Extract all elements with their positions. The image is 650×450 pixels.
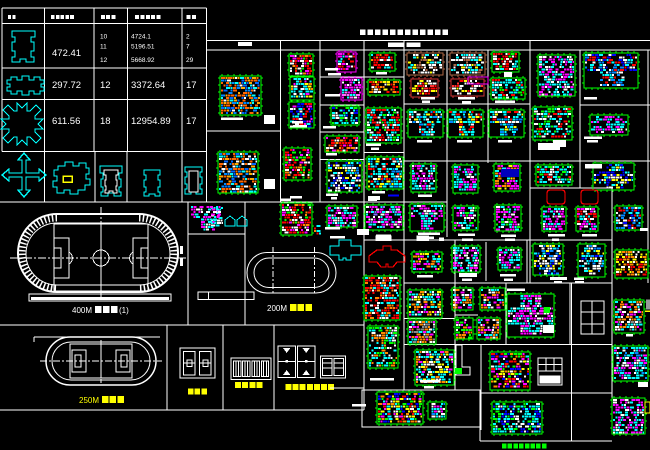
svg-text:400M: 400M [72,306,92,315]
svg-text:12954.89: 12954.89 [131,116,171,127]
svg-text:611.56: 611.56 [52,116,80,127]
svg-text:10: 10 [100,34,108,41]
svg-text:250M: 250M [79,396,99,405]
svg-text:11: 11 [100,44,107,51]
svg-text:29: 29 [186,57,194,64]
svg-text:5196.51: 5196.51 [131,44,155,51]
svg-text:5668.92: 5668.92 [131,57,155,64]
svg-text:472.41: 472.41 [52,48,81,59]
svg-text:4724.1: 4724.1 [131,34,151,41]
svg-text:200M: 200M [267,304,287,313]
svg-text:2: 2 [186,34,190,41]
svg-text:17: 17 [186,80,197,91]
svg-text:297.72: 297.72 [52,80,81,91]
svg-text:3372.64: 3372.64 [131,80,165,91]
svg-text:(1): (1) [119,306,129,315]
svg-text:18: 18 [100,116,111,127]
svg-text:7: 7 [186,44,190,51]
svg-text:17: 17 [186,116,197,127]
svg-text:12: 12 [100,57,108,64]
svg-text:12: 12 [100,80,111,91]
